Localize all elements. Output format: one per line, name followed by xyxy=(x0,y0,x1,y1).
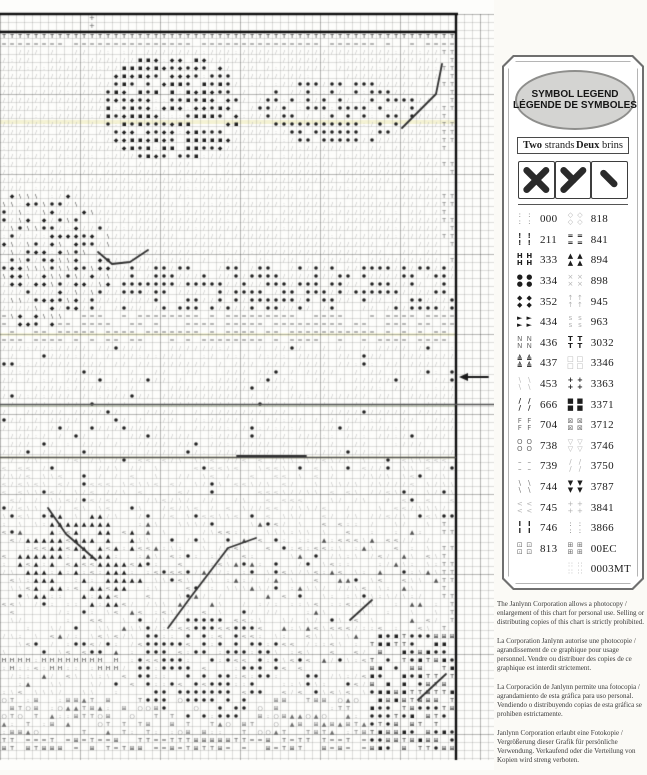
legend-symbol: □□□□ xyxy=(566,356,585,370)
legend-symbol: ►►►► xyxy=(515,315,534,329)
floss-code: 3746 xyxy=(591,440,614,452)
legend-entry-704: FFFF704 xyxy=(515,415,566,436)
strands-label-fr: Deux brins xyxy=(576,140,623,151)
legend-symbol: ×××× xyxy=(566,274,585,288)
legend-entry-963: ssss963 xyxy=(566,312,631,333)
floss-code: 436 xyxy=(540,337,557,349)
legend-symbol: :::: xyxy=(566,521,585,535)
floss-code: 0003MT xyxy=(591,563,631,575)
legend-entry-894: ▲▲▲▲894 xyxy=(566,250,631,271)
legend-symbol: <<<< xyxy=(515,501,534,515)
legend-symbol: //// xyxy=(515,398,534,412)
floss-code: 813 xyxy=(540,543,557,555)
floss-code: 3712 xyxy=(591,419,614,431)
copyright-paragraph-4: Janlynn Corporation erlaubt eine Fotokop… xyxy=(497,729,645,766)
floss-code: 3750 xyxy=(591,460,614,472)
floss-code: 894 xyxy=(591,254,608,266)
legend-column-right: ◇◇◇◇818====841▲▲▲▲894××××898↑↑↑↑945ssss9… xyxy=(566,209,631,580)
legend-entry-453: \\\\453 xyxy=(515,374,566,395)
legend-entry-3363: ++++3363 xyxy=(566,374,631,395)
symbol-legend: SYMBOL LEGEND LÉGENDE DE SYMBOLES Two st… xyxy=(502,55,644,590)
legend-entry-3866: ::::3866 xyxy=(566,518,631,539)
floss-code: 745 xyxy=(540,502,557,514)
legend-entry-3787: ▼▼▼▼3787 xyxy=(566,477,631,498)
legend-symbol: ⊞⊞⊞⊞ xyxy=(566,542,585,556)
copyright-paragraph-1: The Janlynn Corporation allows a photoco… xyxy=(497,600,645,628)
floss-code: 00EC xyxy=(591,543,617,555)
legend-column-left: ::::000!!!!211HHHH333●●●●334◆◆◆◆352►►►►4… xyxy=(515,209,566,580)
legend-symbol: //// xyxy=(566,459,585,473)
floss-code: 666 xyxy=(540,399,557,411)
floss-code: 945 xyxy=(591,296,608,308)
legend-symbol: ↑↑↑↑ xyxy=(566,295,585,309)
legend-symbol: –––– xyxy=(515,459,534,473)
legend-symbol: ssss xyxy=(566,315,585,329)
legend-entry-0003MT: ∷∷∷∷0003MT xyxy=(566,559,631,580)
legend-entry-437: ≜≜≜≜437 xyxy=(515,353,566,374)
copyright-paragraph-3: La Corporación de Janlynn permite una fo… xyxy=(497,683,645,720)
legend-symbol: ∷∷∷∷ xyxy=(566,562,585,576)
legend-entry-3712: ⊠⊠⊠⊠3712 xyxy=(566,415,631,436)
floss-code: 3346 xyxy=(591,357,614,369)
floss-code: 334 xyxy=(540,275,557,287)
floss-code: 818 xyxy=(591,213,608,225)
legend-symbol: ++++ xyxy=(566,377,585,391)
floss-code: 739 xyxy=(540,460,557,472)
copyright-paragraph-2: La Corporation Janlynn autorise une phot… xyxy=(497,637,645,674)
legend-entry-666: ////666 xyxy=(515,394,566,415)
legend-symbol: IIII xyxy=(515,521,534,535)
legend-entry-738: OOOO738 xyxy=(515,436,566,457)
floss-code: 333 xyxy=(540,254,557,266)
floss-code: 434 xyxy=(540,316,557,328)
strands-label: Two strands Deux brins xyxy=(517,137,629,154)
legend-entry-211: !!!!211 xyxy=(515,230,566,251)
legend-symbol: ◆◆◆◆ xyxy=(515,295,534,309)
legend-entry-333: HHHH333 xyxy=(515,250,566,271)
floss-code: 000 xyxy=(540,213,557,225)
legend-symbol: ◇◇◇◇ xyxy=(566,212,585,226)
legend-symbol: ▲▲▲▲ xyxy=(566,253,585,267)
cross-stitch-chart-grid xyxy=(0,0,494,770)
legend-entry-898: ××××898 xyxy=(566,271,631,292)
legend-symbol: ⊠⊠⊠⊠ xyxy=(566,418,585,432)
legend-symbol: \\\\ xyxy=(515,377,534,391)
strands-label-en: Two strands xyxy=(523,140,574,151)
legend-symbol: \\\\ xyxy=(515,480,534,494)
legend-symbol: TTTT xyxy=(566,336,585,350)
floss-code: 211 xyxy=(540,234,557,246)
legend-entry-3750: ////3750 xyxy=(566,456,631,477)
legend-entry-739: ––––739 xyxy=(515,456,566,477)
legend-entries: ::::000!!!!211HHHH333●●●●334◆◆◆◆352►►►►4… xyxy=(515,209,631,580)
legend-symbol: ●●●● xyxy=(515,274,534,288)
legend-entry-436: NNNN436 xyxy=(515,333,566,354)
legend-symbol: ■■■■ xyxy=(566,398,585,412)
floss-code: 3363 xyxy=(591,378,614,390)
symbol-legend-frame: SYMBOL LEGEND LÉGENDE DE SYMBOLES Two st… xyxy=(504,57,642,588)
floss-code: 3032 xyxy=(591,337,614,349)
legend-entry-3346: □□□□3346 xyxy=(566,353,631,374)
legend-entry-000: ::::000 xyxy=(515,209,566,230)
legend-entry-3371: ■■■■3371 xyxy=(566,394,631,415)
floss-code: 352 xyxy=(540,296,557,308)
stitch-type-icons xyxy=(518,161,628,205)
floss-code: 746 xyxy=(540,522,557,534)
legend-symbol: ▽▽▽▽ xyxy=(566,439,585,453)
legend-entry-746: IIII746 xyxy=(515,518,566,539)
half-stitch-icon xyxy=(591,161,628,199)
floss-code: 738 xyxy=(540,440,557,452)
legend-entry-434: ►►►►434 xyxy=(515,312,566,333)
legend-symbol: ▼▼▼▼ xyxy=(566,480,585,494)
legend-symbol: ≜≜≜≜ xyxy=(515,356,534,370)
floss-code: 437 xyxy=(540,357,557,369)
legend-symbol: FFFF xyxy=(515,418,534,432)
copyright-notices: The Janlynn Corporation allows a photoco… xyxy=(497,600,645,775)
legend-symbol: OOOO xyxy=(515,439,534,453)
legend-entry-745: <<<<745 xyxy=(515,497,566,518)
legend-entry-3841: ++++3841 xyxy=(566,497,631,518)
floss-code: 3841 xyxy=(591,502,614,514)
floss-code: 963 xyxy=(591,316,608,328)
legend-title-en: SYMBOL LEGEND xyxy=(531,89,618,101)
legend-symbol: ++++ xyxy=(566,501,585,515)
legend-symbol: ==== xyxy=(566,233,585,247)
legend-symbol: !!!! xyxy=(515,233,534,247)
legend-symbol: HHHH xyxy=(515,253,534,267)
legend-entry-818: ◇◇◇◇818 xyxy=(566,209,631,230)
floss-code: 744 xyxy=(540,481,557,493)
legend-entry-334: ●●●●334 xyxy=(515,271,566,292)
legend-entry-841: ====841 xyxy=(566,230,631,251)
legend-entry-744: \\\\744 xyxy=(515,477,566,498)
legend-symbol: NNNN xyxy=(515,336,534,350)
legend-entry-3032: TTTT3032 xyxy=(566,333,631,354)
symbol-legend-content: SYMBOL LEGEND LÉGENDE DE SYMBOLES Two st… xyxy=(508,61,638,584)
legend-title-fr: LÉGENDE DE SYMBOLES xyxy=(513,100,637,112)
legend-entry-945: ↑↑↑↑945 xyxy=(566,291,631,312)
floss-code: 3866 xyxy=(591,522,614,534)
legend-title-oval: SYMBOL LEGEND LÉGENDE DE SYMBOLES xyxy=(515,70,635,130)
legend-entry-00EC: ⊞⊞⊞⊞00EC xyxy=(566,539,631,560)
floss-code: 898 xyxy=(591,275,608,287)
legend-symbol: :::: xyxy=(515,212,534,226)
legend-entry-3746: ▽▽▽▽3746 xyxy=(566,436,631,457)
floss-code: 841 xyxy=(591,234,608,246)
three-quarter-stitch-icon xyxy=(555,161,592,199)
legend-entry-352: ◆◆◆◆352 xyxy=(515,291,566,312)
legend-symbol: ⊡⊡⊡⊡ xyxy=(515,542,534,556)
floss-code: 3371 xyxy=(591,399,614,411)
floss-code: 453 xyxy=(540,378,557,390)
legend-entry-813: ⊡⊡⊡⊡813 xyxy=(515,539,566,560)
floss-code: 3787 xyxy=(591,481,614,493)
floss-code: 704 xyxy=(540,419,557,431)
full-cross-stitch-icon xyxy=(518,161,555,199)
